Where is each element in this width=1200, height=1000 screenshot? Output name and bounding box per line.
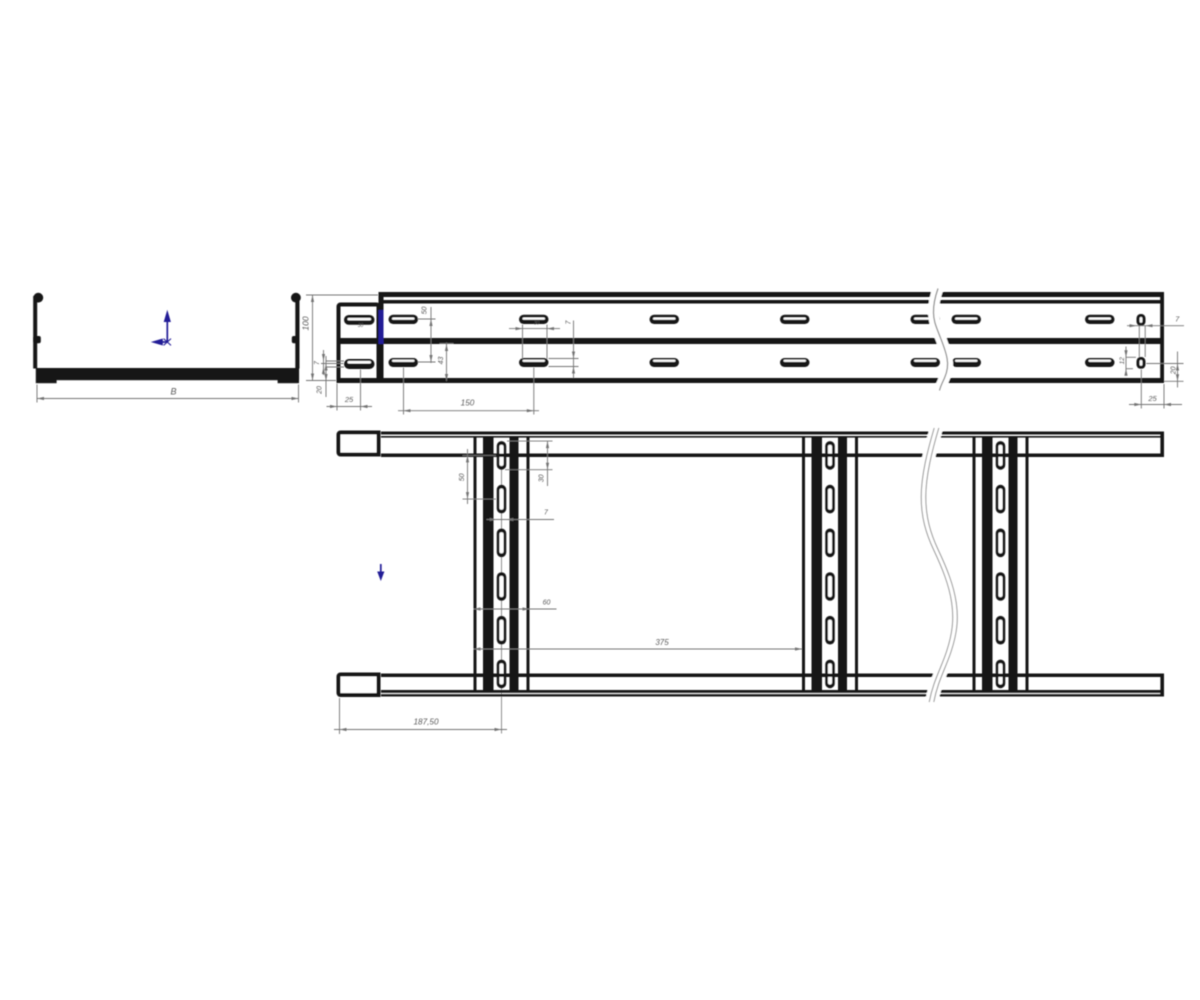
svg-text:50: 50 <box>459 473 466 481</box>
svg-text:25: 25 <box>1147 394 1157 403</box>
svg-text:375: 375 <box>655 638 669 647</box>
svg-text:30: 30 <box>358 323 364 329</box>
svg-text:60: 60 <box>543 599 551 606</box>
svg-text:30: 30 <box>534 321 540 327</box>
svg-text:25: 25 <box>344 395 354 404</box>
svg-text:B: B <box>170 387 176 397</box>
svg-text:187,50: 187,50 <box>413 718 438 727</box>
svg-text:150: 150 <box>461 398 475 407</box>
svg-text:20: 20 <box>316 386 323 395</box>
svg-text:20: 20 <box>1171 366 1178 375</box>
svg-text:12: 12 <box>1119 357 1126 365</box>
svg-text:30: 30 <box>538 474 545 482</box>
svg-text:100: 100 <box>300 316 310 330</box>
svg-text:50: 50 <box>421 307 428 315</box>
svg-text:43: 43 <box>438 357 445 365</box>
